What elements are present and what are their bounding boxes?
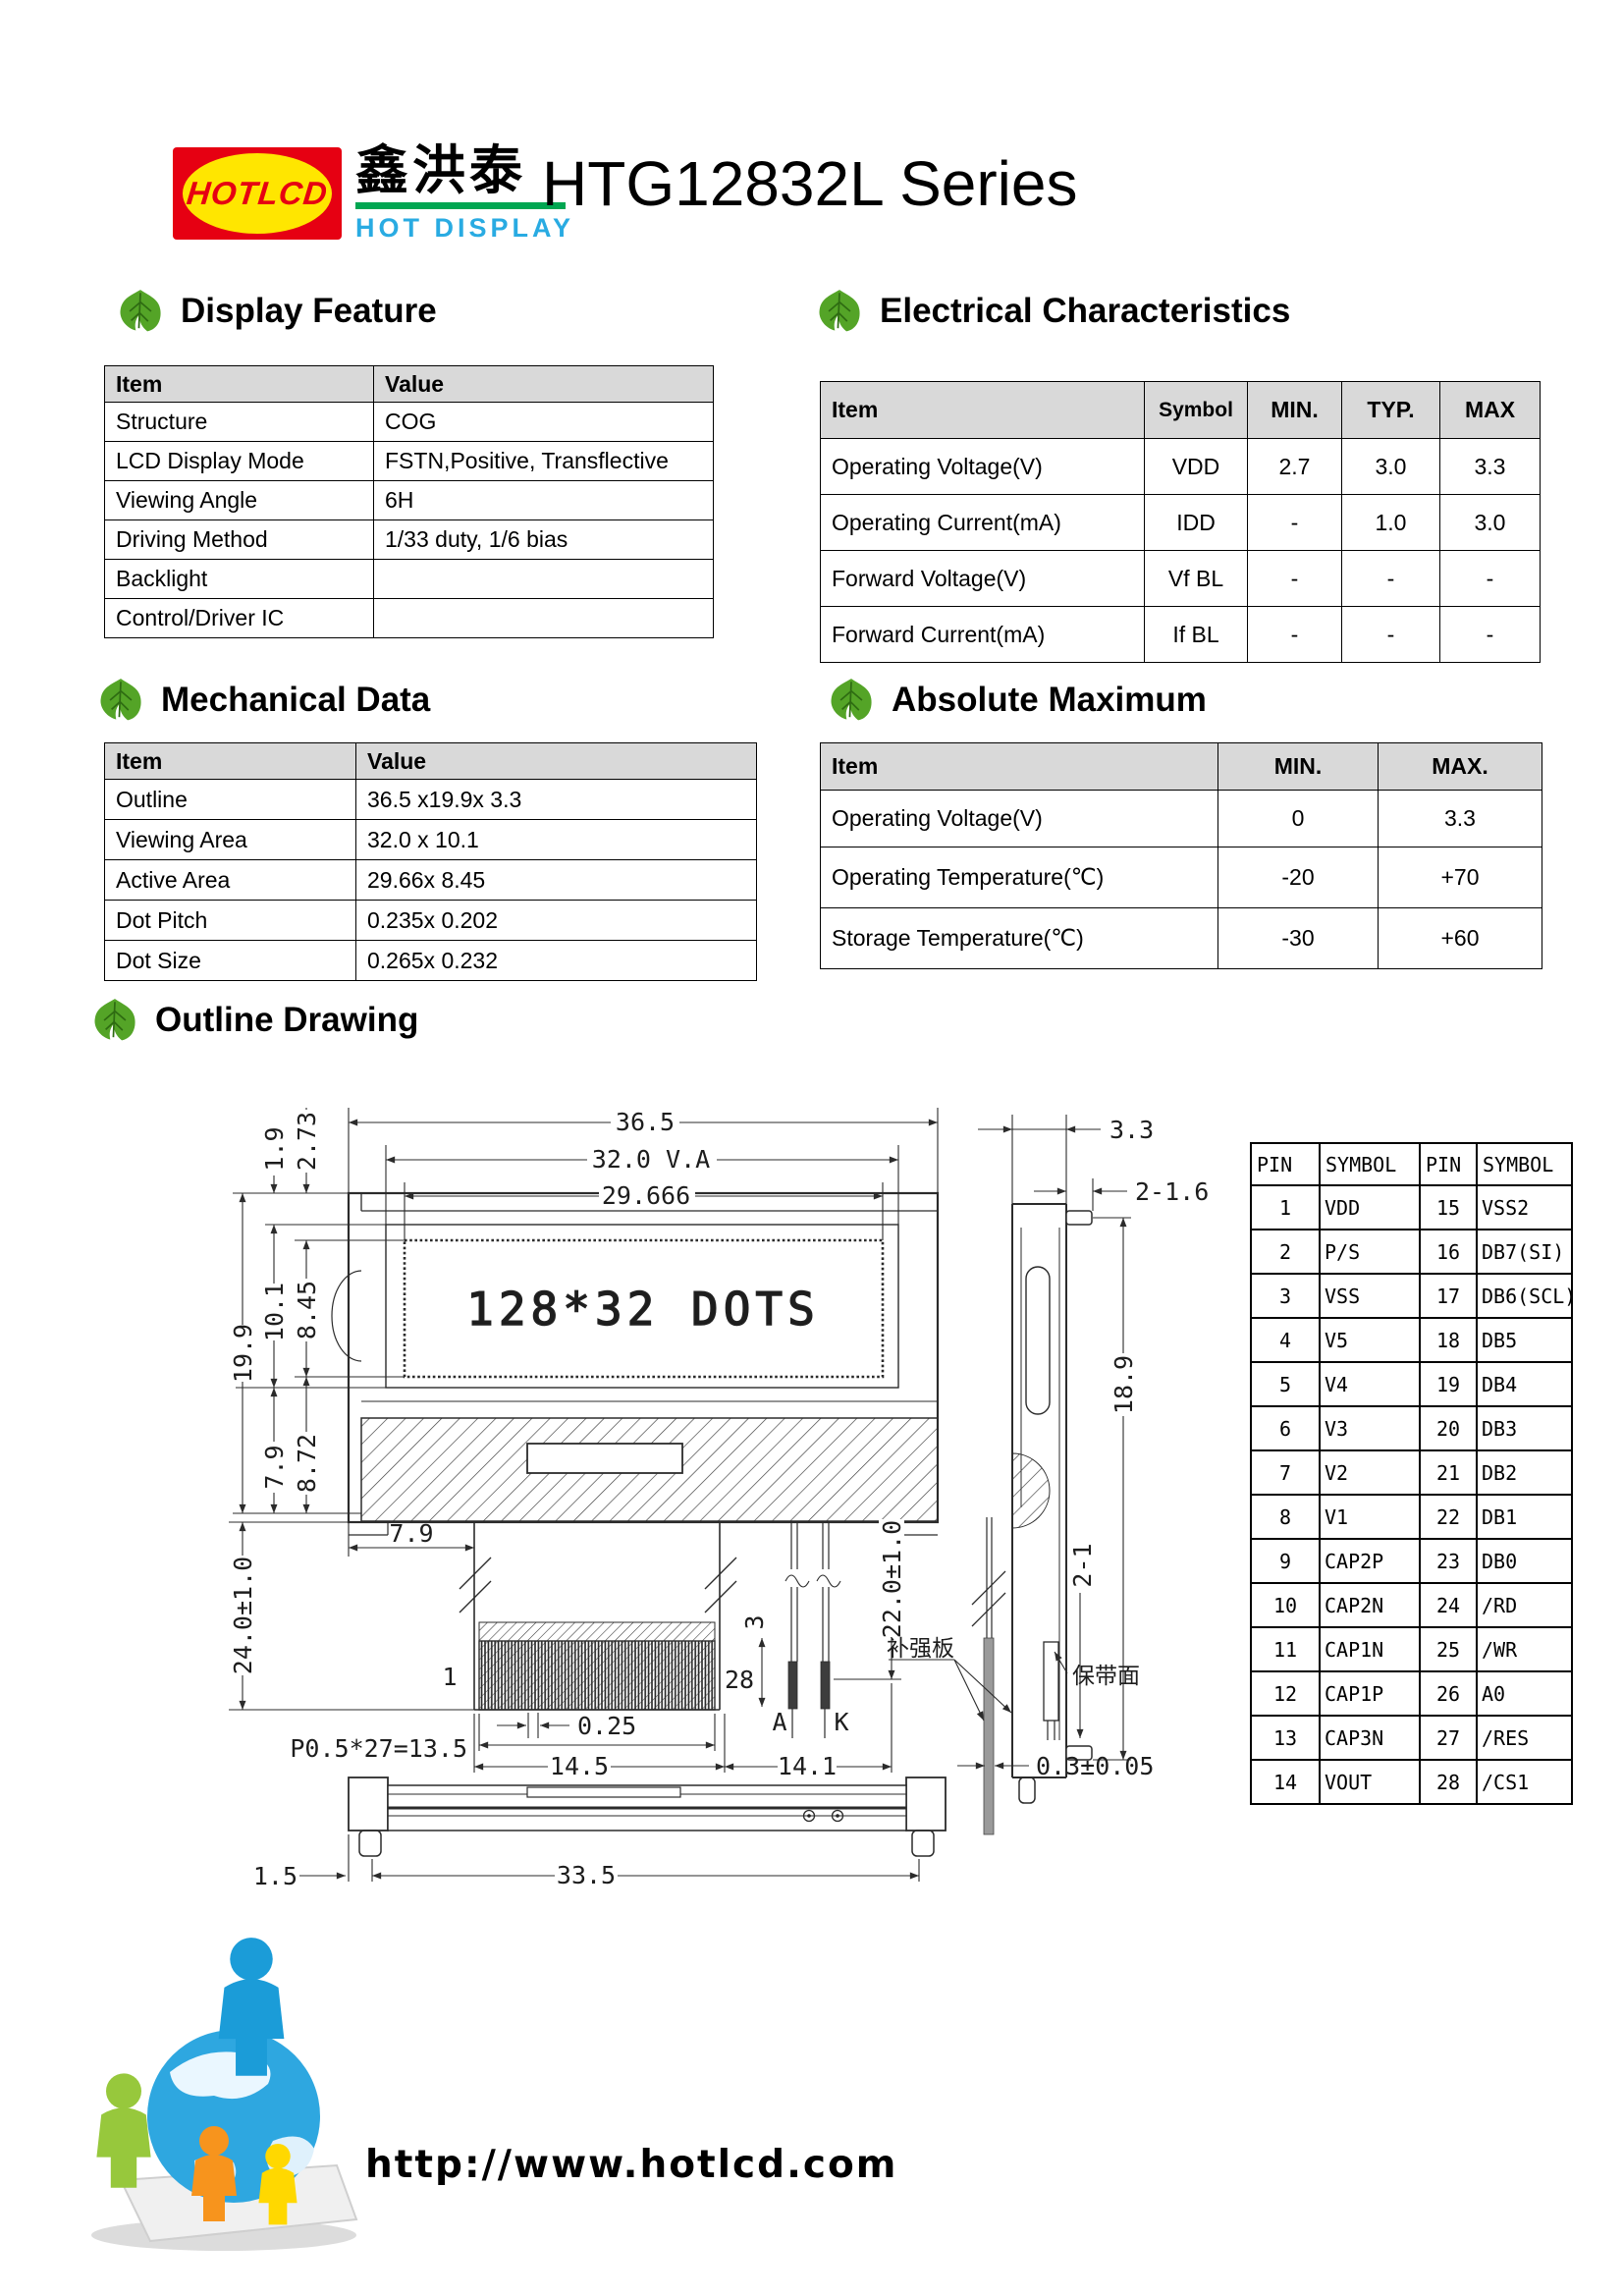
dim-top-holes: 2-1.6 <box>1135 1177 1209 1206</box>
dim-side-height: 18.9 <box>1109 1355 1138 1414</box>
dim-mount-span: 33.5 <box>557 1861 616 1889</box>
note-stiffener: 补强板 <box>887 1636 954 1662</box>
cell-symbol: If BL <box>1145 607 1248 663</box>
pin-row: 10CAP2N24/RD <box>1251 1583 1572 1627</box>
col-item: Item <box>105 743 356 780</box>
dim-foot-offset: 1.5 <box>253 1862 298 1890</box>
pin-symbol: CAP2N <box>1320 1583 1420 1627</box>
cell-min: -30 <box>1218 908 1379 969</box>
heading-label: Absolute Maximum <box>892 681 1207 720</box>
col-typ: TYP. <box>1342 382 1440 439</box>
cell-item: Operating Voltage(V) <box>821 791 1218 847</box>
cell-value: 0.235x 0.202 <box>356 901 757 941</box>
pin-number: 18 <box>1420 1318 1477 1362</box>
heading-outline-drawing: Outline Drawing <box>90 996 418 1045</box>
pin-row: 13CAP3N27/RES <box>1251 1716 1572 1760</box>
col-symbol: Symbol <box>1145 382 1248 439</box>
cell-min: 2.7 <box>1248 439 1342 495</box>
pin-number: 24 <box>1420 1583 1477 1627</box>
heading-display-feature: Display Feature <box>116 287 437 336</box>
fpc-tail <box>460 1522 840 1738</box>
globe-people-logo <box>77 1935 386 2259</box>
dim-fpc-thickness: 0.3±0.05 <box>1036 1752 1154 1780</box>
pin-symbol: V1 <box>1320 1495 1420 1539</box>
col-pin: PIN <box>1420 1143 1477 1185</box>
dim-pin-width: 0.25 <box>577 1712 636 1740</box>
pin-symbol: V5 <box>1320 1318 1420 1362</box>
pin-number: 10 <box>1251 1583 1320 1627</box>
cathode-label: K <box>834 1708 848 1736</box>
website-link[interactable]: http://www.hotlcd.com <box>365 2143 897 2187</box>
datasheet-page: HOTLCD 鑫洪泰 HOT DISPLAY HTG12832L Series … <box>0 0 1623 2296</box>
pin-symbol: V4 <box>1320 1362 1420 1406</box>
cell-item: Operating Temperature(℃) <box>821 847 1218 908</box>
pin-symbol: V3 <box>1320 1406 1420 1450</box>
leaf-icon <box>90 996 139 1045</box>
col-min: MIN. <box>1248 382 1342 439</box>
table-row: Forward Current(mA)If BL--- <box>821 607 1541 663</box>
cell-value: FSTN,Positive, Transflective <box>374 442 714 481</box>
cell-min: 0 <box>1218 791 1379 847</box>
dim-pin-pitch: P0.5*27=13.5 <box>290 1734 467 1763</box>
heading-label: Mechanical Data <box>161 681 430 720</box>
electrical-table: Item Symbol MIN. TYP. MAX Operating Volt… <box>820 381 1541 663</box>
dim-total-width: 36.5 <box>616 1108 675 1136</box>
cell-item: Operating Voltage(V) <box>821 439 1145 495</box>
dim-total-height: 19.9 <box>229 1324 257 1383</box>
pin-first-label: 1 <box>442 1663 457 1691</box>
cell-value: 36.5 x19.9x 3.3 <box>356 780 757 820</box>
table-row: LCD Display ModeFSTN,Positive, Transflec… <box>105 442 714 481</box>
cell-typ: - <box>1342 607 1440 663</box>
leaf-icon <box>96 676 145 725</box>
cell-value: 6H <box>374 481 714 520</box>
col-max: MAX. <box>1379 743 1542 791</box>
cell-max: 3.3 <box>1379 791 1542 847</box>
dim-lead-length: 22.0±1.0 <box>878 1520 906 1638</box>
table-row: Forward Voltage(V)Vf BL--- <box>821 551 1541 607</box>
lcd-dots-label: 128*32 DOTS <box>466 1283 820 1336</box>
pin-row: 3VSS17DB6(SCL) <box>1251 1274 1572 1318</box>
col-symbol: SYMBOL <box>1477 1143 1572 1185</box>
cell-min: - <box>1248 607 1342 663</box>
pin-symbol: A0 <box>1477 1671 1572 1716</box>
dim-pin-span: 14.5 <box>550 1752 609 1780</box>
pin-number: 28 <box>1420 1760 1477 1804</box>
cell-value: 1/33 duty, 1/6 bias <box>374 520 714 560</box>
cell-max: - <box>1440 607 1541 663</box>
table-row: Driving Method1/33 duty, 1/6 bias <box>105 520 714 560</box>
pin-symbol: /RES <box>1477 1716 1572 1760</box>
table-row: Viewing Area32.0 x 10.1 <box>105 820 757 860</box>
pin-number: 8 <box>1251 1495 1320 1539</box>
table-row: Dot Pitch0.235x 0.202 <box>105 901 757 941</box>
cell-item: Backlight <box>105 560 374 599</box>
logo-green-bar <box>355 202 566 209</box>
col-item: Item <box>821 382 1145 439</box>
pin-symbol: VSS <box>1320 1274 1420 1318</box>
pin-number: 17 <box>1420 1274 1477 1318</box>
table-row: Viewing Angle6H <box>105 481 714 520</box>
cell-value: 0.265x 0.232 <box>356 941 757 981</box>
pin-number: 21 <box>1420 1450 1477 1495</box>
cell-max: 3.3 <box>1440 439 1541 495</box>
cell-value: 29.66x 8.45 <box>356 860 757 901</box>
pin-number: 23 <box>1420 1539 1477 1583</box>
col-item: Item <box>821 743 1218 791</box>
dim-va-top: 2.73 <box>293 1112 321 1171</box>
table-row: Control/Driver IC <box>105 599 714 638</box>
outline-drawing: 128*32 DOTS <box>0 1056 1247 1905</box>
pin-row: 4V518DB5 <box>1251 1318 1572 1362</box>
note-tape-side: 保带面 <box>1072 1664 1140 1689</box>
cell-item: LCD Display Mode <box>105 442 374 481</box>
table-row: Active Area29.66x 8.45 <box>105 860 757 901</box>
table-header-row: Item Symbol MIN. TYP. MAX <box>821 382 1541 439</box>
heading-label: Outline Drawing <box>155 1001 418 1040</box>
pin-symbol: DB4 <box>1477 1362 1572 1406</box>
pin-number: 2 <box>1251 1230 1320 1274</box>
pin-number: 27 <box>1420 1716 1477 1760</box>
pin-symbol: CAP1N <box>1320 1627 1420 1671</box>
cell-value <box>374 599 714 638</box>
pin-row: 9CAP2P23DB0 <box>1251 1539 1572 1583</box>
cell-item: Dot Size <box>105 941 356 981</box>
cell-item: Viewing Angle <box>105 481 374 520</box>
col-min: MIN. <box>1218 743 1379 791</box>
pin-symbol: /WR <box>1477 1627 1572 1671</box>
pin-symbol: VSS2 <box>1477 1185 1572 1230</box>
cell-symbol: VDD <box>1145 439 1248 495</box>
cell-typ: - <box>1342 551 1440 607</box>
pin-number: 7 <box>1251 1450 1320 1495</box>
pin-number: 19 <box>1420 1362 1477 1406</box>
table-row: Operating Temperature(℃)-20+70 <box>821 847 1542 908</box>
cell-max: +60 <box>1379 908 1542 969</box>
pin-symbol: DB6(SCL) <box>1477 1274 1572 1318</box>
cell-item: Dot Pitch <box>105 901 356 941</box>
cell-symbol: IDD <box>1145 495 1248 551</box>
heading-label: Display Feature <box>181 292 437 331</box>
pin-row: 5V419DB4 <box>1251 1362 1572 1406</box>
dim-aa-height: 8.45 <box>293 1281 321 1339</box>
heading-mechanical: Mechanical Data <box>96 676 430 725</box>
pin-symbol: DB2 <box>1477 1450 1572 1495</box>
pin-symbol: /CS1 <box>1477 1760 1572 1804</box>
pin-row: 11CAP1N25/WR <box>1251 1627 1572 1671</box>
cell-value: COG <box>374 403 714 442</box>
dim-thickness: 3.3 <box>1109 1116 1154 1144</box>
cell-value: 32.0 x 10.1 <box>356 820 757 860</box>
dim-lower-right: 8.72 <box>293 1434 321 1493</box>
table-row: Operating Voltage(V)03.3 <box>821 791 1542 847</box>
pin-symbol: VDD <box>1320 1185 1420 1230</box>
heading-electrical: Electrical Characteristics <box>815 287 1290 336</box>
front-view <box>332 1193 938 1535</box>
cell-typ: 3.0 <box>1342 439 1440 495</box>
table-row: Operating Voltage(V)VDD2.73.03.3 <box>821 439 1541 495</box>
pin-number: 14 <box>1251 1760 1320 1804</box>
pin-row: 8V122DB1 <box>1251 1495 1572 1539</box>
dim-lead-tip: 3 <box>740 1614 769 1629</box>
cell-value <box>374 560 714 599</box>
pin-row: 6V320DB3 <box>1251 1406 1572 1450</box>
pin-number: 1 <box>1251 1185 1320 1230</box>
pin-symbol: P/S <box>1320 1230 1420 1274</box>
pin-number: 5 <box>1251 1362 1320 1406</box>
table-row: Outline36.5 x19.9x 3.3 <box>105 780 757 820</box>
heading-label: Electrical Characteristics <box>880 292 1290 331</box>
table-row: StructureCOG <box>105 403 714 442</box>
cell-max: - <box>1440 551 1541 607</box>
table-row: Dot Size0.265x 0.232 <box>105 941 757 981</box>
pin-number: 11 <box>1251 1627 1320 1671</box>
dim-lead-span: 14.1 <box>778 1752 837 1780</box>
cell-min: - <box>1248 495 1342 551</box>
pin-number: 4 <box>1251 1318 1320 1362</box>
col-value: Value <box>374 366 714 403</box>
table-header-row: Item Value <box>105 366 714 403</box>
table-row: Operating Current(mA)IDD-1.03.0 <box>821 495 1541 551</box>
pin-number: 25 <box>1420 1627 1477 1671</box>
cell-item: Outline <box>105 780 356 820</box>
pin-row: 12CAP1P26A0 <box>1251 1671 1572 1716</box>
dim-va-width: 32.0 V.A <box>592 1145 710 1174</box>
dim-aa-width: 29.666 <box>602 1181 690 1210</box>
absolute-maximum-table: Item MIN. MAX. Operating Voltage(V)03.3 … <box>820 742 1542 969</box>
pin-assignment-table: PIN SYMBOL PIN SYMBOL 1VDD15VSS2 2P/S16D… <box>1250 1142 1573 1805</box>
cell-item: Control/Driver IC <box>105 599 374 638</box>
leaf-icon <box>815 287 864 336</box>
pin-symbol: V2 <box>1320 1450 1420 1495</box>
pin-row: 1VDD15VSS2 <box>1251 1185 1572 1230</box>
pin-symbol: CAP2P <box>1320 1539 1420 1583</box>
cell-item: Storage Temperature(℃) <box>821 908 1218 969</box>
pin-symbol: CAP1P <box>1320 1671 1420 1716</box>
cell-item: Viewing Area <box>105 820 356 860</box>
col-value: Value <box>356 743 757 780</box>
pin-number: 16 <box>1420 1230 1477 1274</box>
cell-item: Structure <box>105 403 374 442</box>
mechanical-table: Item Value Outline36.5 x19.9x 3.3 Viewin… <box>104 742 757 981</box>
leaf-icon <box>827 676 876 725</box>
dim-tail-length: 24.0±1.0 <box>229 1557 257 1674</box>
pin-row: 2P/S16DB7(SI) <box>1251 1230 1572 1274</box>
table-row: Backlight <box>105 560 714 599</box>
dim-tail-offset: 7.9 <box>389 1519 433 1548</box>
pin-number: 20 <box>1420 1406 1477 1450</box>
pin-row: 14VOUT28/CS1 <box>1251 1760 1572 1804</box>
col-max: MAX <box>1440 382 1541 439</box>
pin-number: 3 <box>1251 1274 1320 1318</box>
dim-lower-left: 7.9 <box>260 1445 289 1489</box>
cell-item: Driving Method <box>105 520 374 560</box>
cell-item: Active Area <box>105 860 356 901</box>
cell-item: Operating Current(mA) <box>821 495 1145 551</box>
cell-min: -20 <box>1218 847 1379 908</box>
pin-number: 15 <box>1420 1185 1477 1230</box>
pin-number: 22 <box>1420 1495 1477 1539</box>
col-symbol: SYMBOL <box>1320 1143 1420 1185</box>
pin-row: 7V221DB2 <box>1251 1450 1572 1495</box>
pin-symbol: DB7(SI) <box>1477 1230 1572 1274</box>
leaf-icon <box>116 287 165 336</box>
pin-number: 13 <box>1251 1716 1320 1760</box>
cell-max: +70 <box>1379 847 1542 908</box>
table-header-row: Item Value <box>105 743 757 780</box>
anode-label: A <box>772 1708 786 1736</box>
pin-symbol: VOUT <box>1320 1760 1420 1804</box>
cell-max: 3.0 <box>1440 495 1541 551</box>
cell-symbol: Vf BL <box>1145 551 1248 607</box>
cell-min: - <box>1248 551 1342 607</box>
dim-bezel-top: 1.9 <box>260 1126 289 1171</box>
page-title: HTG12832L Series <box>542 147 1077 220</box>
dim-va-height: 10.1 <box>260 1283 289 1341</box>
hotlcd-logo-mark: HOTLCD <box>173 147 342 240</box>
pin-last-label: 28 <box>725 1666 754 1694</box>
pin-symbol: DB5 <box>1477 1318 1572 1362</box>
dim-bottom-holes: 2-1 <box>1068 1543 1097 1587</box>
bottom-view <box>299 1777 946 1882</box>
table-row: Storage Temperature(℃)-30+60 <box>821 908 1542 969</box>
cell-typ: 1.0 <box>1342 495 1440 551</box>
pin-number: 26 <box>1420 1671 1477 1716</box>
heading-absolute-maximum: Absolute Maximum <box>827 676 1207 725</box>
pin-symbol: CAP3N <box>1320 1716 1420 1760</box>
col-pin: PIN <box>1251 1143 1320 1185</box>
logo-hotlcd-text: HOTLCD <box>168 147 347 240</box>
display-feature-table: Item Value StructureCOG LCD Display Mode… <box>104 365 714 638</box>
pin-number: 6 <box>1251 1406 1320 1450</box>
table-header-row: Item MIN. MAX. <box>821 743 1542 791</box>
pin-number: 12 <box>1251 1671 1320 1716</box>
pin-symbol: DB3 <box>1477 1406 1572 1450</box>
pin-symbol: DB1 <box>1477 1495 1572 1539</box>
pin-number: 9 <box>1251 1539 1320 1583</box>
cell-item: Forward Voltage(V) <box>821 551 1145 607</box>
col-item: Item <box>105 366 374 403</box>
cell-item: Forward Current(mA) <box>821 607 1145 663</box>
pin-symbol: DB0 <box>1477 1539 1572 1583</box>
brand-logo: HOTLCD 鑫洪泰 HOT DISPLAY <box>173 143 574 244</box>
pin-table-header: PIN SYMBOL PIN SYMBOL <box>1251 1143 1572 1185</box>
pin-symbol: /RD <box>1477 1583 1572 1627</box>
